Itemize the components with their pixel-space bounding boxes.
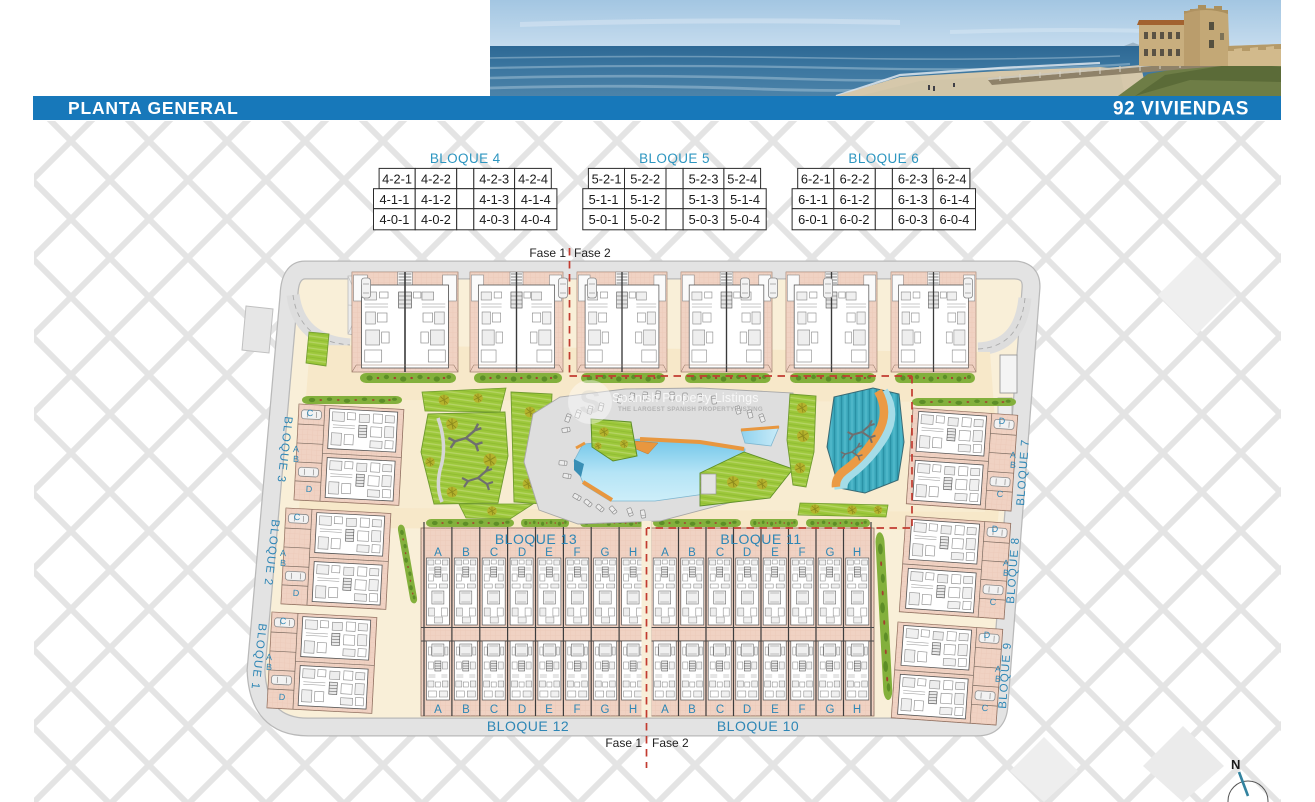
svg-text:B: B	[688, 704, 696, 716]
svg-text:BLOQUE 6: BLOQUE 6	[848, 151, 919, 166]
svg-text:6-0-4: 6-0-4	[939, 212, 969, 227]
svg-text:A: A	[1010, 450, 1017, 460]
svg-text:4-1-3: 4-1-3	[479, 192, 509, 207]
svg-text:6-1-1: 6-1-1	[798, 192, 828, 207]
svg-text:Fase 2: Fase 2	[652, 736, 689, 750]
svg-text:4-0-4: 4-0-4	[521, 212, 551, 227]
svg-text:6-1-4: 6-1-4	[939, 192, 969, 207]
svg-text:4-1-2: 4-1-2	[421, 192, 451, 207]
svg-text:BLOQUE 11: BLOQUE 11	[720, 531, 801, 547]
svg-text:4-2-3: 4-2-3	[479, 172, 509, 187]
svg-text:6-1-2: 6-1-2	[840, 192, 870, 207]
svg-text:C: C	[490, 704, 498, 716]
svg-text:B: B	[462, 547, 470, 559]
svg-text:A: A	[266, 652, 273, 662]
svg-text:F: F	[573, 547, 580, 559]
svg-text:G: G	[601, 704, 610, 716]
svg-text:6-2-3: 6-2-3	[898, 172, 928, 187]
svg-text:H: H	[853, 704, 861, 716]
svg-text:B: B	[280, 558, 287, 568]
svg-text:B: B	[293, 454, 300, 464]
svg-text:C: C	[989, 597, 997, 607]
svg-text:5-2-3: 5-2-3	[689, 172, 719, 187]
svg-text:D: D	[278, 692, 286, 702]
svg-text:5-0-2: 5-0-2	[630, 212, 660, 227]
svg-text:B: B	[266, 662, 273, 672]
svg-text:92 VIVIENDAS: 92 VIVIENDAS	[1113, 99, 1249, 120]
svg-text:G: G	[601, 547, 610, 559]
svg-text:4-2-4: 4-2-4	[518, 172, 548, 187]
svg-text:4-1-1: 4-1-1	[379, 192, 409, 207]
svg-text:6-2-1: 6-2-1	[801, 172, 831, 187]
svg-text:A: A	[661, 704, 669, 716]
svg-text:4-1-4: 4-1-4	[521, 192, 551, 207]
svg-text:C: C	[981, 703, 989, 713]
svg-text:Fase 2: Fase 2	[574, 246, 611, 260]
svg-text:4-0-3: 4-0-3	[479, 212, 509, 227]
svg-text:A: A	[293, 444, 300, 454]
svg-text:6-0-1: 6-0-1	[798, 212, 828, 227]
svg-text:C: C	[306, 408, 314, 418]
svg-text:4-0-2: 4-0-2	[421, 212, 451, 227]
svg-text:B: B	[462, 704, 470, 716]
svg-text:BLOQUE 13: BLOQUE 13	[495, 531, 577, 547]
svg-text:5-2-2: 5-2-2	[630, 172, 660, 187]
svg-text:A: A	[661, 547, 669, 559]
svg-text:D: D	[998, 416, 1006, 426]
svg-text:BLOQUE 4: BLOQUE 4	[430, 151, 501, 166]
svg-text:D: D	[991, 524, 999, 534]
svg-text:PLANTA GENERAL: PLANTA GENERAL	[68, 98, 239, 118]
svg-text:5-0-3: 5-0-3	[689, 212, 719, 227]
svg-text:D: D	[518, 547, 526, 559]
svg-text:E: E	[545, 547, 553, 559]
svg-text:D: D	[983, 630, 991, 640]
svg-text:B: B	[688, 547, 696, 559]
svg-text:G: G	[826, 704, 835, 716]
svg-text:B: B	[1010, 460, 1017, 470]
svg-text:5-2-1: 5-2-1	[592, 172, 622, 187]
svg-text:C: C	[716, 547, 724, 559]
svg-text:Fase 1: Fase 1	[529, 246, 566, 260]
svg-text:A: A	[434, 547, 442, 559]
svg-text:Fase 1: Fase 1	[605, 736, 642, 750]
svg-text:C: C	[293, 512, 301, 522]
svg-text:5-2-4: 5-2-4	[727, 172, 757, 187]
svg-text:6-2-4: 6-2-4	[937, 172, 967, 187]
svg-text:5-0-1: 5-0-1	[589, 212, 619, 227]
svg-text:6-0-3: 6-0-3	[898, 212, 928, 227]
svg-text:4-0-1: 4-0-1	[379, 212, 409, 227]
svg-text:5-1-1: 5-1-1	[589, 192, 619, 207]
svg-text:E: E	[545, 704, 553, 716]
svg-text:BLOQUE 5: BLOQUE 5	[639, 151, 710, 166]
svg-text:BLOQUE 12: BLOQUE 12	[487, 718, 569, 734]
svg-text:6-2-2: 6-2-2	[840, 172, 870, 187]
svg-text:H: H	[629, 547, 637, 559]
svg-text:A: A	[434, 704, 442, 716]
svg-text:D: D	[518, 704, 526, 716]
svg-text:A: A	[280, 548, 287, 558]
svg-text:F: F	[798, 547, 805, 559]
svg-text:5-1-3: 5-1-3	[689, 192, 719, 207]
svg-text:BLOQUE 10: BLOQUE 10	[717, 718, 799, 734]
svg-text:C: C	[279, 616, 287, 626]
svg-text:C: C	[490, 547, 498, 559]
svg-text:6-0-2: 6-0-2	[840, 212, 870, 227]
svg-text:THE LARGEST SPANISH PROPERTY L: THE LARGEST SPANISH PROPERTY LISTING	[618, 406, 763, 413]
svg-text:G: G	[826, 547, 835, 559]
svg-text:H: H	[853, 547, 861, 559]
svg-text:F: F	[573, 704, 580, 716]
svg-text:C: C	[716, 704, 724, 716]
svg-text:F: F	[798, 704, 805, 716]
svg-text:Spanish Property Listings: Spanish Property Listings	[612, 391, 759, 405]
svg-text:4-2-2: 4-2-2	[421, 172, 451, 187]
svg-text:5-0-4: 5-0-4	[730, 212, 760, 227]
svg-text:D: D	[292, 588, 300, 598]
svg-text:6-1-3: 6-1-3	[898, 192, 928, 207]
svg-text:D: D	[743, 704, 751, 716]
svg-text:S: S	[579, 384, 600, 420]
svg-text:4-2-1: 4-2-1	[382, 172, 412, 187]
svg-text:5-1-4: 5-1-4	[730, 192, 760, 207]
svg-text:D: D	[305, 484, 313, 494]
svg-text:E: E	[771, 704, 779, 716]
svg-text:D: D	[743, 547, 751, 559]
svg-text:N: N	[1231, 757, 1240, 772]
svg-text:H: H	[629, 704, 637, 716]
svg-text:C: C	[996, 489, 1004, 499]
svg-text:5-1-2: 5-1-2	[630, 192, 660, 207]
svg-text:E: E	[771, 547, 779, 559]
